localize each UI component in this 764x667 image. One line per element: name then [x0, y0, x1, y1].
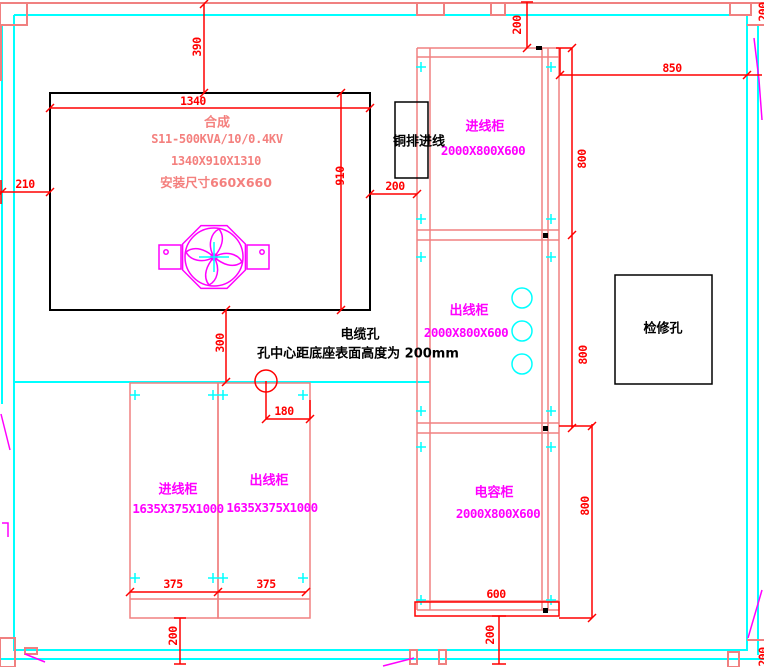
- busbar-entry-label: 铜排进线: [393, 136, 445, 149]
- transformer-install: 安装尺寸660X660: [160, 177, 272, 190]
- dim-label: 200: [166, 626, 180, 645]
- cable-hole-note: 孔中心距底座表面高度为 200mm: [257, 348, 459, 361]
- dim-label: 800: [575, 149, 589, 168]
- dim-label: 300: [213, 333, 227, 352]
- fan-crosshair: [199, 242, 229, 272]
- incoming-cabinet-label: 进线柜: [465, 121, 504, 134]
- dim-label: 200: [483, 625, 497, 644]
- room-walls: [0, 15, 764, 659]
- inspection-hole-label: 检修孔: [643, 323, 682, 336]
- dim-label: 375: [256, 577, 275, 591]
- small-outgoing-size: 1635X375X1000: [226, 502, 317, 515]
- dim-label: 375: [163, 577, 182, 591]
- dim-label: 200: [756, 2, 764, 21]
- dim-label: 910: [333, 166, 347, 185]
- small-incoming-label: 进线柜: [158, 484, 197, 497]
- dim-label: 200: [385, 179, 404, 193]
- small-incoming-size: 1635X375X1000: [132, 503, 223, 516]
- vent-circles: [512, 288, 532, 374]
- outgoing-cabinet-size: 2000X800X600: [424, 327, 508, 340]
- transformer-size: 1340X910X1310: [171, 155, 261, 167]
- capacitor-cabinet-size: 2000X800X600: [456, 508, 540, 521]
- capacitor-cabinet-label: 电容柜: [474, 487, 513, 500]
- dim-label: 800: [576, 345, 590, 364]
- outgoing-cabinet-label: 出线柜: [449, 305, 488, 318]
- transformer-model: S11-500KVA/10/0.4KV: [151, 133, 283, 145]
- small-outgoing-label: 出线柜: [249, 475, 288, 488]
- transformer-title: 合成: [204, 117, 230, 130]
- dim-label: 390: [190, 37, 204, 56]
- cable-hole-title: 电缆孔: [340, 329, 379, 342]
- dim-label: 180: [274, 404, 293, 418]
- dim-label: 1340: [180, 94, 206, 108]
- incoming-cabinet-size: 2000X800X600: [441, 145, 525, 158]
- dim-label: 800: [578, 496, 592, 515]
- dim-label: 200: [756, 647, 764, 666]
- cad-drawing-page: { "colors": { "wall_cyan": "#00ffff", "c…: [0, 0, 764, 667]
- dim-label: 210: [15, 177, 34, 191]
- dim-label: 600: [486, 587, 505, 601]
- dim-label: 850: [662, 61, 681, 75]
- dim-label: 200: [510, 15, 524, 34]
